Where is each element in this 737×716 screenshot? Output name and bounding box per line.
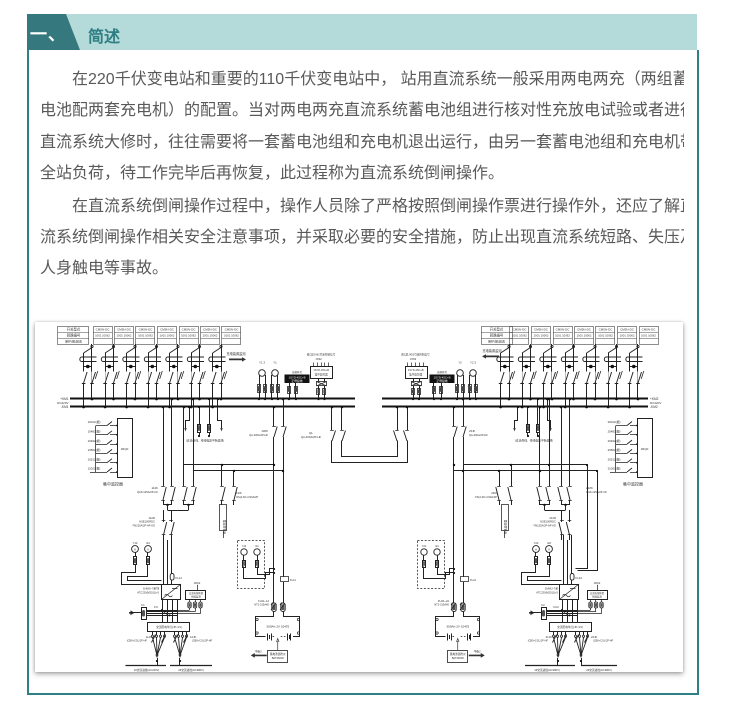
- svg-text:平衡2: 平衡2: [255, 650, 262, 654]
- svg-text:FU21~22: FU21~22: [438, 599, 450, 603]
- svg-text:JRQ0: JRQ0: [641, 447, 649, 451]
- svg-text:A: A: [535, 548, 537, 552]
- svg-text:集中监控器: 集中监控器: [103, 481, 123, 487]
- svg-text:1001 10062: 1001 10062: [138, 334, 153, 338]
- svg-text:F1: F1: [141, 603, 145, 607]
- svg-text:ATC230(M2011)+5: ATC230(M2011)+5: [536, 590, 558, 594]
- svg-text:JD62: JD62: [194, 581, 201, 585]
- svg-text:Y22: Y22: [534, 541, 539, 545]
- svg-text:OS(4-DC-CS0A/2P: OS(4-DC-CS0A/2P: [236, 495, 258, 499]
- svg-text:Y12: Y12: [133, 541, 138, 545]
- svg-text:CM5N-DC: CM5N-DC: [556, 328, 571, 332]
- svg-text:I11: I11: [255, 544, 259, 548]
- svg-text:交流配电单元(JP-4/1): 交流配电单元(JP-4/1): [156, 625, 182, 629]
- svg-text:QA-400A/2P-HF: QA-400A/2P-HF: [249, 433, 268, 437]
- svg-text:智能监测: 智能监测: [592, 595, 602, 599]
- svg-text:Y2.3: Y2.3: [470, 361, 476, 365]
- svg-text:1001 10062: 1001 10062: [181, 334, 196, 338]
- svg-text:CM5N-DC: CM5N-DC: [139, 328, 154, 332]
- svg-text:1SYD-45C+B: 1SYD-45C+B: [313, 368, 329, 372]
- svg-text:Y2: Y2: [458, 361, 462, 365]
- svg-text:2NMU-7系: 2NMU-7系: [545, 587, 558, 591]
- svg-text:FL22: FL22: [576, 576, 583, 580]
- svg-text:QA-400A/2P-HF: QA-400A/2P-HF: [301, 435, 322, 439]
- svg-text:1001 10062: 1001 10062: [203, 334, 218, 338]
- svg-text:-KM2: -KM2: [650, 405, 658, 409]
- svg-text:1001 10062: 1001 10062: [224, 334, 239, 338]
- svg-text:20492(报): 20492(报): [608, 438, 621, 443]
- svg-text:2#交流进线(AC380V): 2#交流进线(AC380V): [586, 668, 612, 672]
- svg-text:JX62: JX62: [315, 357, 322, 361]
- svg-text:开关型式: 开关型式: [490, 327, 504, 332]
- svg-text:FU11~12: FU11~12: [258, 599, 269, 603]
- svg-text:10492(报): 10492(报): [88, 438, 101, 443]
- svg-text:由C屏JX62引来控制信号: 由C屏JX62引来控制信号: [401, 353, 430, 357]
- svg-text:NSE100RDC: NSE100RDC: [139, 520, 155, 524]
- svg-text:1NMU-7系列: 1NMU-7系列: [143, 587, 159, 591]
- svg-text:QA9-125A/2P-CF: QA9-125A/2P-CF: [137, 490, 158, 494]
- svg-text:10482(报): 10482(报): [88, 429, 101, 434]
- svg-text:CM5N-DC: CM5N-DC: [182, 328, 197, 332]
- svg-text:10502(报): 10502(报): [88, 447, 101, 452]
- svg-text:11002(报): 11002(报): [88, 466, 101, 471]
- svg-text:CM5N-DC: CM5N-DC: [225, 328, 240, 332]
- svg-text:保护(报)装置: 保护(报)装置: [65, 339, 82, 344]
- svg-text:V: V: [548, 548, 550, 552]
- svg-text:绝缘监察器: 绝缘监察器: [223, 520, 227, 534]
- svg-text:-TM125A/2P-HF-KD: -TM125A/2P-HF-KD: [132, 523, 155, 527]
- svg-text:14IK: 14IK: [236, 491, 242, 495]
- svg-text:高频开关: 高频开关: [292, 370, 303, 374]
- svg-text:13ZK: 13ZK: [261, 429, 268, 433]
- svg-text:NT2-315A#2: NT2-315A#2: [434, 603, 449, 607]
- svg-text:I21: I21: [435, 544, 439, 548]
- svg-text:ATC230(M2011)+5: ATC230(M2011)+5: [137, 590, 159, 594]
- svg-text:20512(报): 20512(报): [608, 456, 621, 461]
- svg-text:回路编号: 回路编号: [490, 333, 504, 338]
- svg-text:CM5N-DC: CM5N-DC: [117, 328, 132, 332]
- svg-text:回路编号: 回路编号: [67, 333, 81, 338]
- svg-text:JD62: JD62: [594, 581, 601, 585]
- svg-text:FL12: FL12: [176, 576, 183, 580]
- svg-text:CM5N-DC: CM5N-DC: [160, 328, 175, 332]
- svg-text:集中监控器: 集中监控器: [409, 372, 422, 376]
- svg-text:300Ah 2V 104只: 300Ah 2V 104只: [266, 625, 289, 629]
- svg-text:NT2-315A#2: NT2-315A#2: [254, 603, 269, 607]
- svg-text:JRQ0: JRQ0: [121, 447, 129, 451]
- svg-text:20482(报): 20482(报): [608, 429, 621, 434]
- svg-text:FU: FU: [154, 605, 158, 609]
- svg-text:(CB9+CGL/2P-HF: (CB9+CGL/2P-HF: [593, 640, 614, 643]
- svg-text:22JK: 22JK: [591, 635, 598, 639]
- svg-text:Y1.3: Y1.3: [259, 361, 265, 365]
- svg-text:1001 10062: 1001 10062: [577, 334, 592, 338]
- svg-text:正母接地: 正母接地: [291, 379, 302, 383]
- svg-text:(CB9+CGL/2P-HF: (CB9+CGL/2P-HF: [192, 640, 213, 643]
- svg-text:20502(报): 20502(报): [608, 447, 621, 452]
- svg-text:F2: F2: [541, 603, 545, 607]
- svg-text:1001 10062: 1001 10062: [117, 334, 132, 338]
- svg-text:21JK: 21JK: [546, 635, 553, 639]
- svg-text:蓄电池巡检仪: 蓄电池巡检仪: [450, 652, 466, 656]
- svg-text:充电装置监测: 充电装置监测: [226, 351, 245, 356]
- svg-text:FU2: FU2: [553, 605, 559, 609]
- svg-text:高频开关: 高频开关: [437, 370, 448, 374]
- svg-text:CM5N-DC: CM5N-DC: [620, 328, 635, 332]
- svg-text:A: A: [134, 548, 136, 552]
- svg-text:1001 10062: 1001 10062: [95, 334, 110, 338]
- svg-text:智能监测: 智能监测: [191, 595, 201, 599]
- svg-text:Y11: Y11: [242, 544, 247, 548]
- svg-text:21002(报): 21002(报): [608, 466, 621, 471]
- svg-text:集中监控器: 集中监控器: [315, 372, 328, 376]
- svg-text:JX62: JX62: [410, 357, 417, 361]
- svg-text:交流电源防雷: 交流电源防雷: [189, 591, 204, 595]
- svg-text:FL11: FL11: [290, 578, 296, 582]
- svg-text:CM5N-DC: CM5N-DC: [599, 328, 614, 332]
- svg-text:(CB9+CGL/2P-HF: (CB9+CGL/2P-HF: [528, 640, 549, 643]
- svg-text:10512(报): 10512(报): [88, 456, 101, 461]
- svg-text:CM5N-DC: CM5N-DC: [203, 328, 218, 332]
- svg-text:QA-400A/2P-HF: QA-400A/2P-HF: [469, 433, 488, 437]
- svg-text:OS(4-DC-CS0A/2P: OS(4-DC-CS0A/2P: [475, 495, 497, 499]
- svg-text:1001 10062: 1001 10062: [620, 334, 635, 338]
- svg-text:开关型式: 开关型式: [67, 327, 81, 332]
- svg-text:Y1: Y1: [273, 361, 277, 365]
- svg-text:-TM125A/2P-HF-KD: -TM125A/2P-HF-KD: [533, 523, 556, 527]
- svg-text:1001 10062: 1001 10062: [534, 334, 549, 338]
- svg-text:充电装置监测: 充电装置监测: [482, 348, 501, 353]
- svg-text:NSE100RDC: NSE100RDC: [540, 520, 556, 524]
- svg-text:(直流母线、母线电压平衡监测): (直流母线、母线电压平衡监测): [515, 439, 553, 443]
- svg-text:正母接地: 正母接地: [436, 379, 447, 383]
- svg-text:CM5N-DC: CM5N-DC: [577, 328, 592, 332]
- svg-text:-KM1: -KM1: [61, 405, 69, 409]
- svg-text:BAT36000: BAT36000: [272, 656, 285, 660]
- svg-text:112R: 112R: [149, 516, 155, 520]
- svg-text:(CB9+CGL/2P-HF: (CB9+CGL/2P-HF: [127, 640, 148, 643]
- svg-text:300Ah 2V 104只: 300Ah 2V 104只: [446, 625, 469, 629]
- svg-text:交流配电单元(JP-4/1): 交流配电单元(JP-4/1): [557, 625, 583, 629]
- svg-text:1SYD-45C+B: 1SYD-45C+B: [408, 368, 424, 372]
- svg-text:10012(报): 10012(报): [88, 419, 101, 424]
- svg-text:CM5N-DC: CM5N-DC: [513, 328, 528, 332]
- svg-text:212R: 212R: [549, 516, 556, 520]
- svg-text:Y21: Y21: [422, 544, 427, 548]
- svg-text:23JK: 23JK: [469, 429, 476, 433]
- svg-text:1001 10062: 1001 10062: [641, 334, 656, 338]
- svg-text:V: V: [147, 548, 149, 552]
- svg-text:保护(报)装置: 保护(报)装置: [488, 339, 505, 344]
- svg-text:(直流母线、母线电压平衡监测): (直流母线、母线电压平衡监测): [186, 439, 224, 443]
- svg-text:CM5N-DC: CM5N-DC: [96, 328, 111, 332]
- svg-text:平衡2: 平衡2: [474, 650, 481, 654]
- svg-text:24IK: 24IK: [491, 491, 497, 495]
- svg-text:1001 10062: 1001 10062: [512, 334, 527, 338]
- svg-text:交流电源防雷: 交流电源防雷: [590, 591, 605, 595]
- svg-text:CM5N-DC: CM5N-DC: [534, 328, 549, 332]
- svg-text:蓄电池巡检仪: 蓄电池巡检仪: [270, 652, 286, 656]
- svg-text:CM5N-DC: CM5N-DC: [642, 328, 657, 332]
- svg-text:I22: I22: [547, 541, 551, 545]
- svg-text:集中监控器: 集中监控器: [623, 481, 643, 487]
- svg-text:FL21: FL21: [470, 578, 477, 582]
- svg-text:1001 10062: 1001 10062: [555, 334, 570, 338]
- svg-text:1001 10062: 1001 10062: [598, 334, 613, 338]
- svg-text:2#交流进线(AC380V): 2#交流进线(AC380V): [178, 668, 204, 672]
- svg-text:1#交流进线(AC240V): 1#交流进线(AC240V): [134, 668, 160, 672]
- svg-text:1001 10062: 1001 10062: [160, 334, 175, 338]
- svg-text:I12: I12: [146, 541, 150, 545]
- svg-text:20012(报): 20012(报): [608, 419, 621, 424]
- svg-text:112K: 112K: [151, 486, 158, 490]
- svg-text:1#交流进线(AC380V): 1#交流进线(AC380V): [534, 668, 560, 672]
- svg-text:12JK: 12JK: [190, 635, 197, 639]
- svg-text:QA9-125A/2P-CF: QA9-125A/2P-CF: [586, 490, 607, 494]
- svg-text:由C屏JX62引来控制信号: 由C屏JX62引来控制信号: [307, 353, 336, 357]
- svg-text:BAT36000: BAT36000: [452, 656, 465, 660]
- svg-text:绝缘监察器: 绝缘监察器: [504, 520, 508, 534]
